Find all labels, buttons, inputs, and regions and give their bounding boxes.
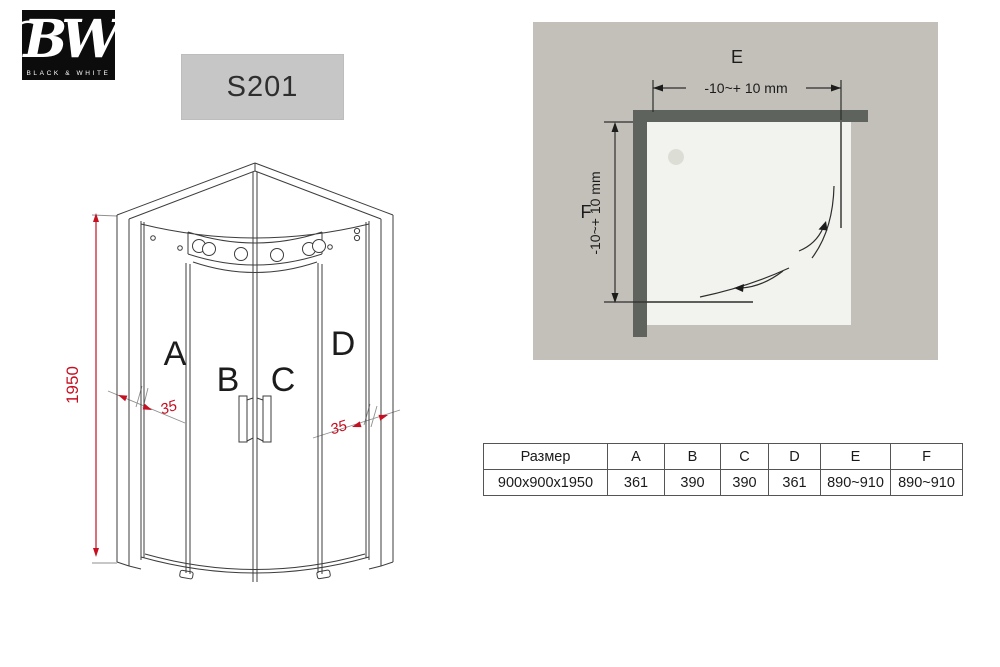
spec-header-row: Размер A B C D E F (484, 444, 963, 470)
overlap-dimension-left: 35 (118, 395, 180, 418)
panel-label-c: C (271, 361, 296, 399)
panel-label-b: B (217, 361, 240, 399)
spec-col-header-f: F (891, 444, 963, 470)
height-dimension: 1950 (63, 213, 99, 557)
spec-col-header-b: B (665, 444, 721, 470)
plan-view: E -10~+ 10 mm F -10~+ 10 mm (533, 22, 938, 360)
spec-cell-size: 900x900x1950 (484, 470, 608, 496)
fixed-panel-profiles (141, 221, 369, 560)
overlap-dimension-right: 35 (328, 415, 388, 438)
wall-top (633, 110, 868, 122)
technical-drawing: A B C D 1950 35 35 (0, 0, 1000, 667)
spec-cell-c: 390 (721, 470, 769, 496)
door-foot-left (179, 570, 193, 579)
panel-label-a: A (164, 335, 187, 373)
plan-depth-tolerance: -10~+ 10 mm (587, 171, 603, 254)
wall-posts (117, 163, 393, 569)
elevation-drawing: A B C D 1950 35 35 (63, 163, 400, 582)
spec-cell-e: 890~910 (821, 470, 891, 496)
door-edges (186, 172, 322, 582)
plan-width-letter: E (731, 47, 743, 67)
door-handles (239, 396, 271, 442)
header-rail (141, 224, 369, 273)
plan-width-tolerance: -10~+ 10 mm (704, 80, 787, 96)
height-value: 1950 (63, 366, 82, 404)
drain-icon (668, 149, 684, 165)
spec-cell-b: 390 (665, 470, 721, 496)
overlap-value-right: 35 (328, 417, 350, 439)
screw-dots (151, 228, 360, 250)
spec-col-header-c: C (721, 444, 769, 470)
overlap-value-left: 35 (158, 397, 180, 419)
spec-cell-a: 361 (608, 470, 665, 496)
door-foot-right (317, 570, 331, 579)
spec-table: Размер A B C D E F 900x900x1950 361 390 … (483, 443, 963, 496)
spec-col-header-e: E (821, 444, 891, 470)
spec-data-row: 900x900x1950 361 390 390 361 890~910 890… (484, 470, 963, 496)
spec-cell-d: 361 (769, 470, 821, 496)
spec-col-header-size: Размер (484, 444, 608, 470)
wall-left (633, 110, 647, 337)
dimension-extension-lines (92, 215, 400, 563)
shower-enclosure-spec-sheet: BW BLACK & WHITE S201 (0, 0, 1000, 667)
panel-label-d: D (331, 325, 356, 363)
spec-col-header-d: D (769, 444, 821, 470)
spec-col-header-a: A (608, 444, 665, 470)
bottom-rail (141, 554, 369, 573)
spec-cell-f: 890~910 (891, 470, 963, 496)
